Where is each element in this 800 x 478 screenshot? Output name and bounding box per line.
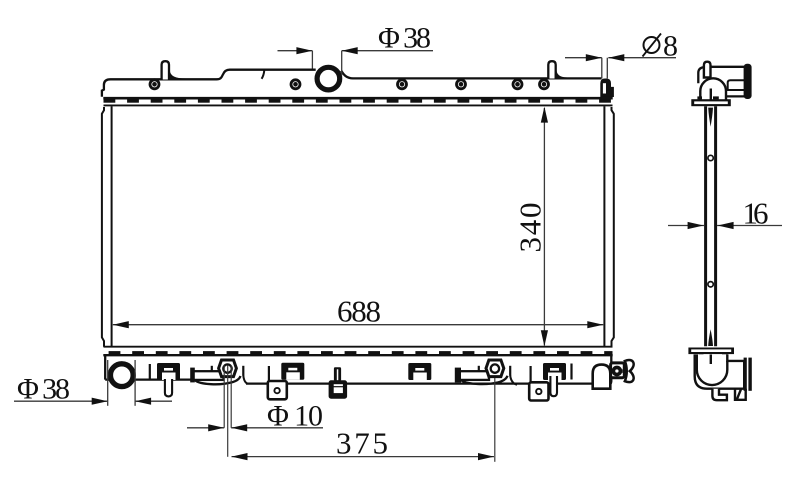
- svg-text:Φ 38: Φ 38: [378, 22, 431, 55]
- svg-text:688: 688: [337, 294, 381, 329]
- svg-text:340: 340: [513, 203, 548, 253]
- svg-text:16: 16: [743, 196, 769, 231]
- svg-text:Φ 38: Φ 38: [17, 373, 70, 406]
- svg-text:375: 375: [336, 426, 388, 461]
